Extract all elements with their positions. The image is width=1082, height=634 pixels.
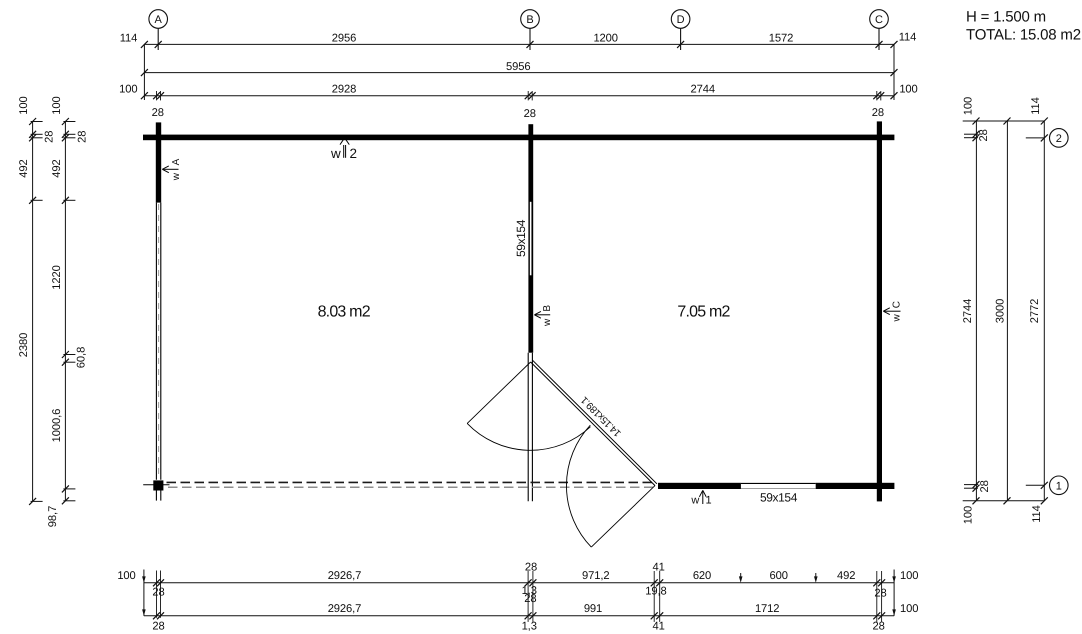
svg-text:2928: 2928	[332, 84, 357, 96]
svg-text:1: 1	[1056, 480, 1062, 492]
svg-text:w: w	[171, 172, 182, 181]
svg-text:2744: 2744	[691, 84, 716, 96]
svg-text:28: 28	[152, 586, 164, 598]
svg-text:114: 114	[120, 32, 138, 44]
svg-text:100: 100	[900, 570, 918, 582]
svg-text:28: 28	[77, 131, 89, 143]
svg-text:28: 28	[152, 621, 164, 633]
svg-text:A: A	[155, 14, 163, 26]
svg-text:100: 100	[51, 96, 63, 114]
svg-text:28: 28	[525, 562, 537, 574]
svg-text:100: 100	[18, 96, 30, 114]
svg-text:2: 2	[1056, 133, 1062, 145]
svg-text:114: 114	[899, 32, 917, 44]
svg-text:2380: 2380	[18, 333, 30, 358]
svg-text:1200: 1200	[593, 32, 618, 44]
svg-text:98,7: 98,7	[47, 506, 59, 527]
svg-text:1712: 1712	[755, 603, 780, 615]
svg-text:1,3: 1,3	[522, 621, 537, 633]
svg-text:w: w	[542, 318, 553, 327]
svg-text:B: B	[526, 14, 533, 26]
svg-text:TOTAL: 15.08 m2: TOTAL: 15.08 m2	[966, 27, 1081, 44]
svg-text:620: 620	[693, 570, 711, 582]
svg-text:114: 114	[1031, 505, 1043, 523]
svg-text:1572: 1572	[769, 32, 794, 44]
svg-text:28: 28	[524, 593, 536, 605]
svg-text:492: 492	[18, 159, 30, 177]
svg-text:28: 28	[874, 588, 886, 600]
svg-text:1220: 1220	[51, 265, 63, 290]
svg-text:100: 100	[117, 570, 135, 582]
svg-text:5956: 5956	[506, 61, 531, 73]
svg-text:H = 1.500 m: H = 1.500 m	[966, 9, 1046, 26]
svg-text:w: w	[891, 314, 902, 323]
svg-text:C: C	[875, 14, 883, 26]
svg-text:1000,6: 1000,6	[51, 409, 63, 443]
svg-text:971,2: 971,2	[582, 570, 610, 582]
svg-text:3000: 3000	[994, 299, 1006, 324]
svg-text:w: w	[690, 495, 699, 507]
svg-text:100: 100	[962, 506, 974, 524]
svg-text:28: 28	[44, 131, 56, 143]
svg-text:2926,7: 2926,7	[328, 603, 362, 615]
svg-text:A: A	[171, 158, 182, 165]
svg-text:41: 41	[652, 562, 664, 574]
svg-text:19,8: 19,8	[645, 586, 666, 598]
svg-text:41: 41	[652, 621, 664, 633]
svg-text:28: 28	[978, 129, 990, 141]
svg-text:7.05 m2: 7.05 m2	[677, 304, 730, 321]
svg-text:100: 100	[963, 97, 975, 115]
svg-text:28: 28	[872, 621, 884, 633]
svg-text:492: 492	[837, 570, 855, 582]
svg-text:600: 600	[770, 570, 788, 582]
svg-text:100: 100	[899, 84, 917, 96]
svg-text:C: C	[891, 301, 902, 308]
svg-text:59x154: 59x154	[514, 219, 528, 257]
svg-text:B: B	[542, 305, 553, 312]
svg-text:492: 492	[51, 159, 63, 177]
svg-text:991: 991	[584, 603, 602, 615]
svg-text:8.03 m2: 8.03 m2	[318, 304, 371, 321]
svg-text:28: 28	[872, 107, 884, 119]
svg-text:w: w	[330, 146, 341, 161]
svg-text:28: 28	[524, 108, 536, 120]
svg-text:2772: 2772	[1029, 299, 1041, 324]
svg-text:2956: 2956	[332, 32, 357, 44]
svg-text:2: 2	[350, 146, 357, 161]
svg-text:114: 114	[1030, 97, 1042, 115]
svg-text:D: D	[677, 14, 685, 26]
svg-text:2926,7: 2926,7	[328, 570, 362, 582]
svg-text:28: 28	[979, 480, 991, 492]
svg-text:100: 100	[900, 603, 918, 615]
svg-text:28: 28	[152, 107, 164, 119]
svg-text:100: 100	[119, 84, 137, 96]
svg-text:2744: 2744	[962, 299, 974, 324]
svg-text:60,8: 60,8	[76, 347, 88, 368]
svg-text:59x154: 59x154	[760, 491, 798, 505]
